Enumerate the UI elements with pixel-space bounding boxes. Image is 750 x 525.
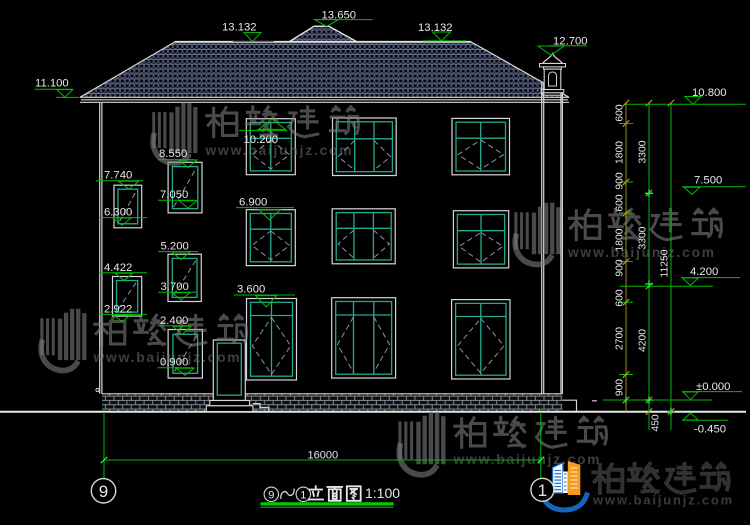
svg-text:13.132: 13.132	[222, 22, 257, 34]
svg-text:4200: 4200	[638, 329, 649, 352]
svg-text:www.baijunjz.com: www.baijunjz.com	[205, 143, 354, 158]
svg-text:10.800: 10.800	[692, 87, 727, 99]
svg-text:5.200: 5.200	[161, 241, 189, 253]
svg-text:8.550: 8.550	[159, 148, 187, 160]
svg-text:600: 600	[615, 194, 626, 211]
svg-text:10.200: 10.200	[244, 134, 279, 146]
svg-text:2.922: 2.922	[104, 304, 132, 316]
svg-text:7.050: 7.050	[160, 189, 188, 201]
svg-text:4.422: 4.422	[104, 262, 132, 274]
svg-text:9: 9	[99, 482, 108, 501]
svg-text:900: 900	[615, 172, 626, 189]
svg-text:3.700: 3.700	[161, 281, 189, 293]
svg-text:7.500: 7.500	[694, 175, 722, 187]
svg-text:1: 1	[300, 489, 306, 501]
svg-text:16000: 16000	[308, 450, 339, 462]
svg-text:600: 600	[615, 104, 626, 121]
svg-text:9: 9	[268, 489, 274, 501]
svg-text:11250: 11250	[660, 249, 671, 277]
svg-text:1800: 1800	[615, 228, 626, 251]
svg-text:3300: 3300	[638, 226, 649, 249]
svg-text:7.740: 7.740	[104, 170, 132, 182]
svg-text:3.600: 3.600	[237, 284, 265, 296]
svg-text:0.900: 0.900	[160, 357, 188, 369]
svg-text:450: 450	[651, 414, 662, 431]
svg-text:900: 900	[615, 379, 626, 396]
svg-text:6.300: 6.300	[104, 207, 132, 219]
svg-text:-0.450: -0.450	[694, 424, 726, 436]
svg-text:1800: 1800	[615, 141, 626, 164]
svg-text:2.400: 2.400	[160, 315, 188, 327]
svg-text:1:100: 1:100	[365, 485, 400, 501]
svg-text:11.100: 11.100	[35, 78, 69, 90]
svg-text:900: 900	[615, 259, 626, 276]
svg-text:1: 1	[538, 481, 547, 500]
svg-text:www.baijunjz.com: www.baijunjz.com	[592, 493, 734, 508]
svg-text:6.900: 6.900	[239, 197, 267, 209]
svg-text:600: 600	[615, 289, 626, 306]
svg-text:3300: 3300	[638, 140, 649, 163]
svg-text:2700: 2700	[615, 327, 626, 350]
svg-text:4.200: 4.200	[690, 266, 718, 278]
